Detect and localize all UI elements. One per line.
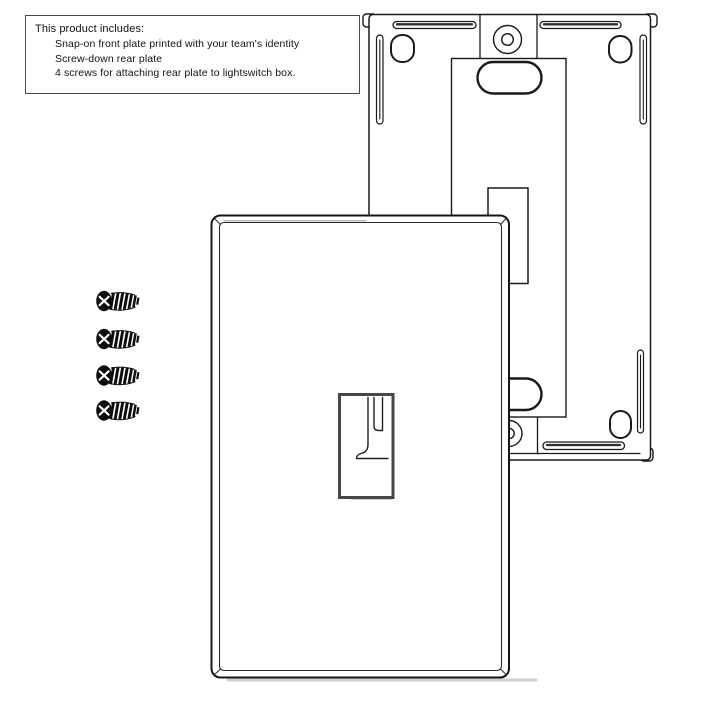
- info-item-screws: 4 screws for attaching rear plate to lig…: [35, 66, 353, 81]
- diagram-artwork: [0, 0, 720, 720]
- info-box-items: Snap-on front plate printed with your te…: [35, 37, 353, 81]
- toggle-opening: [340, 395, 394, 498]
- product-diagram-page: This product includes: Snap-on front pla…: [0, 0, 720, 720]
- screws-group: [96, 291, 138, 421]
- bottom-rail-right: [543, 442, 625, 450]
- info-item-front-plate: Snap-on front plate printed with your te…: [35, 37, 353, 52]
- info-item-rear-plate: Screw-down rear plate: [35, 52, 353, 67]
- top-rail-right: [540, 22, 621, 29]
- info-box: This product includes: Snap-on front pla…: [25, 15, 360, 94]
- front-plate-drawing: [212, 216, 537, 681]
- screw-icon: [96, 291, 138, 311]
- screw-icon: [96, 329, 138, 349]
- info-box-title: This product includes:: [35, 22, 353, 36]
- screw-icon: [96, 400, 138, 420]
- screw-icon: [96, 365, 138, 385]
- top-rail-left: [393, 22, 476, 29]
